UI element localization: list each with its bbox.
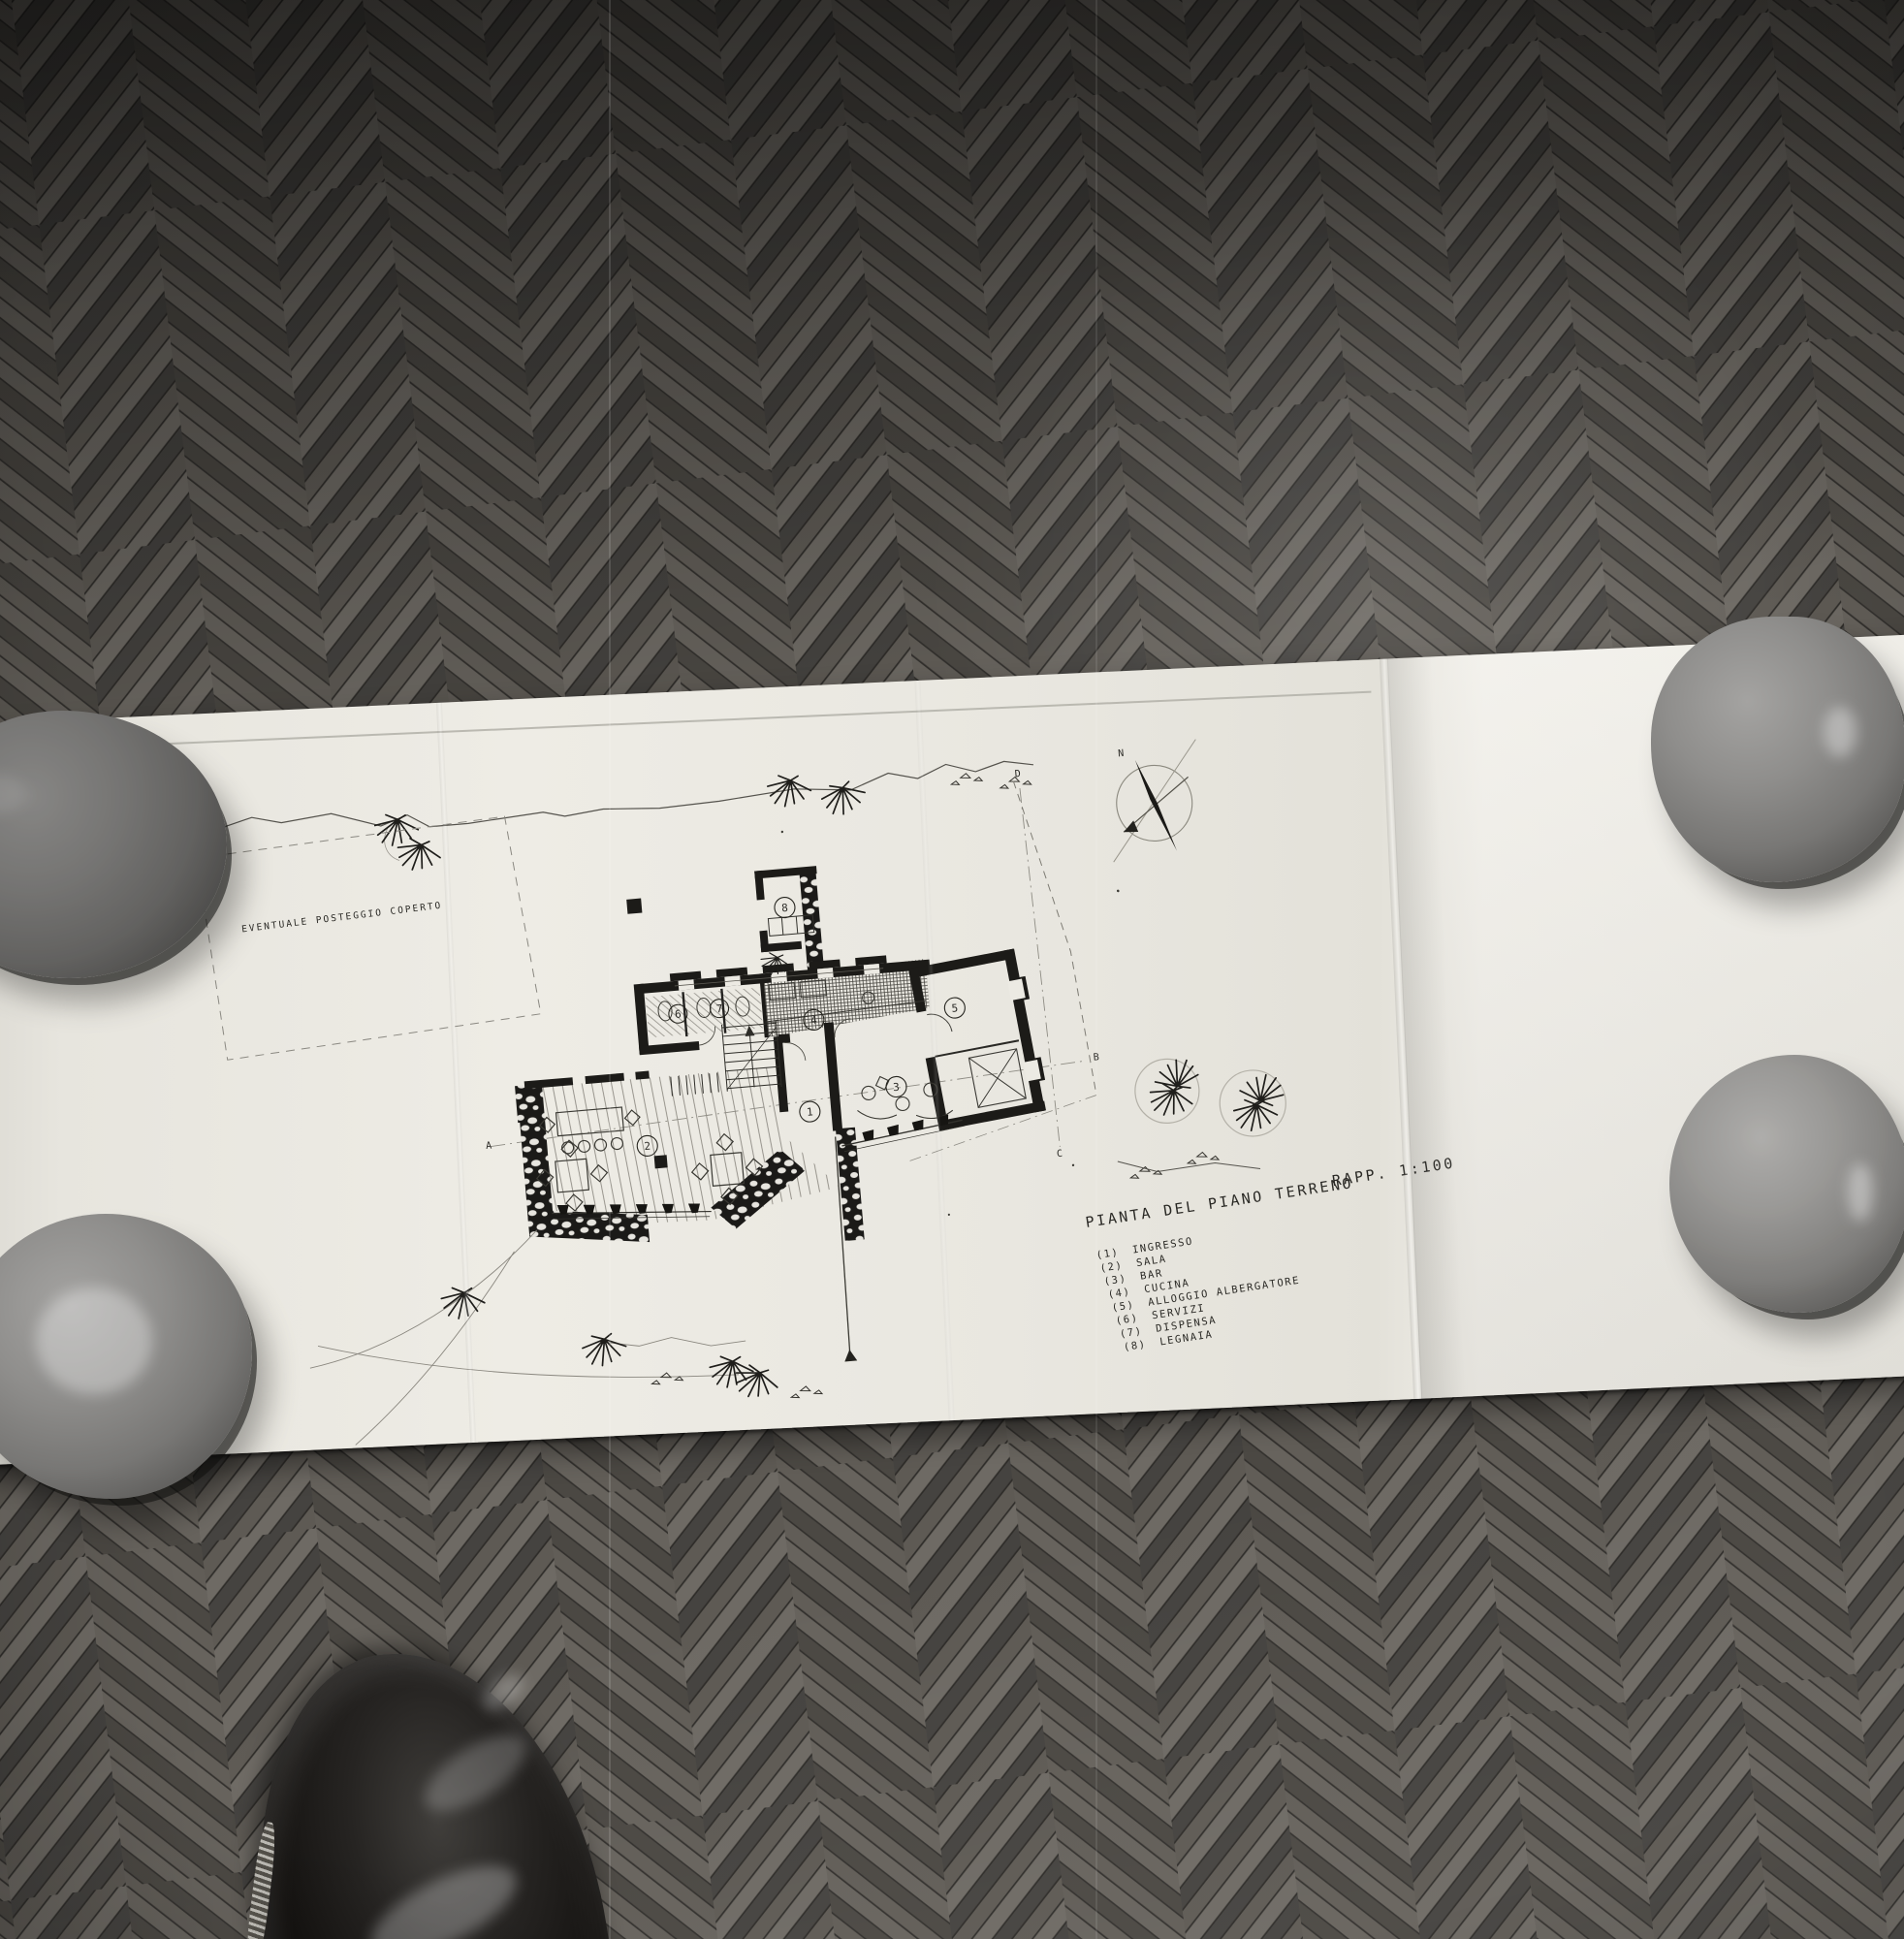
- legend-num: (5): [1111, 1299, 1135, 1314]
- section-marker-a: A: [486, 1141, 492, 1152]
- room-number-3: 3: [893, 1081, 901, 1095]
- shoe-toe: [222, 1627, 635, 1939]
- stones-sketch: [951, 772, 983, 785]
- legend-num: (1): [1095, 1247, 1120, 1261]
- building-plan: [498, 848, 1070, 1388]
- bowl-highlight: [36, 1287, 152, 1394]
- stone-wall: [515, 1084, 545, 1123]
- compass-needle: [1135, 757, 1177, 854]
- shoe-welt-stitching: [243, 1822, 278, 1939]
- bowl-highlight: [1848, 1163, 1873, 1222]
- bush-sketch: [397, 838, 441, 871]
- bush-sketch: [581, 1329, 629, 1369]
- legend-num: (7): [1119, 1325, 1143, 1340]
- plan-content: EVENTUALE POSTEGGIO COPERTO N: [194, 718, 1472, 1454]
- compass-rose: N: [1104, 740, 1206, 863]
- stones-sketch: [790, 1385, 822, 1399]
- room-number-7: 7: [715, 1002, 723, 1016]
- bush-sketch: [767, 773, 812, 808]
- legend-num: (4): [1107, 1286, 1131, 1300]
- title-block: PIANTA DEL PIANO TERRENO RAPP. 1:100: [1084, 1154, 1457, 1230]
- bush-sketch: [733, 1363, 780, 1401]
- legend-label: SALA: [1135, 1254, 1167, 1270]
- photo-frame: EVENTUALE POSTEGGIO COPERTO N: [0, 0, 1904, 1939]
- room-number-1: 1: [807, 1105, 814, 1119]
- terrain-sketch-bottom: [301, 1214, 752, 1448]
- bowl-highlight: [0, 775, 26, 813]
- drawing-title: PIANTA DEL PIANO TERRENO: [1084, 1174, 1354, 1231]
- shoe-highlight: [477, 1668, 529, 1716]
- legend-num: (8): [1123, 1339, 1147, 1353]
- servizi-floor: [646, 988, 763, 1038]
- film-scratch: [609, 0, 611, 1939]
- legend: (1)INGRESSO (2)SALA (3)BAR (4)CUCINA (5)…: [1095, 1221, 1307, 1355]
- section-marker-c: C: [1057, 1149, 1063, 1160]
- north-label: N: [1118, 748, 1125, 759]
- parking-label: EVENTUALE POSTEGGIO COPERTO: [241, 901, 443, 936]
- legend-num: (3): [1103, 1273, 1127, 1287]
- bush-sketch: [819, 776, 870, 818]
- entry-arrow: [843, 1349, 857, 1361]
- room-number-5: 5: [951, 1001, 959, 1015]
- film-scratch: [1095, 0, 1097, 1939]
- shoe-highlight: [413, 1720, 538, 1826]
- room-number-8: 8: [781, 902, 789, 915]
- bowl-highlight: [1824, 707, 1856, 757]
- bowl-top-right: [1651, 617, 1904, 882]
- stones-sketch: [651, 1372, 683, 1385]
- legend-label: BAR: [1139, 1267, 1163, 1282]
- terrain-sketch-top: [225, 751, 1037, 874]
- svg-text:(5)ALLOGGIO ALBERGATORE: (5)ALLOGGIO ALBERGATORE: [1111, 1275, 1301, 1315]
- legend-num: (2): [1099, 1259, 1124, 1274]
- legend-num: (6): [1115, 1313, 1139, 1327]
- leather-shoe: [215, 1642, 642, 1939]
- drawing-sheet: EVENTUALE POSTEGGIO COPERTO N: [0, 632, 1904, 1466]
- shoe-highlight: [358, 1848, 528, 1939]
- parking-area: EVENTUALE POSTEGGIO COPERTO: [196, 814, 543, 1061]
- room-number-6: 6: [675, 1007, 682, 1021]
- room-number-2: 2: [644, 1140, 651, 1154]
- section-marker-d: D: [1014, 769, 1021, 779]
